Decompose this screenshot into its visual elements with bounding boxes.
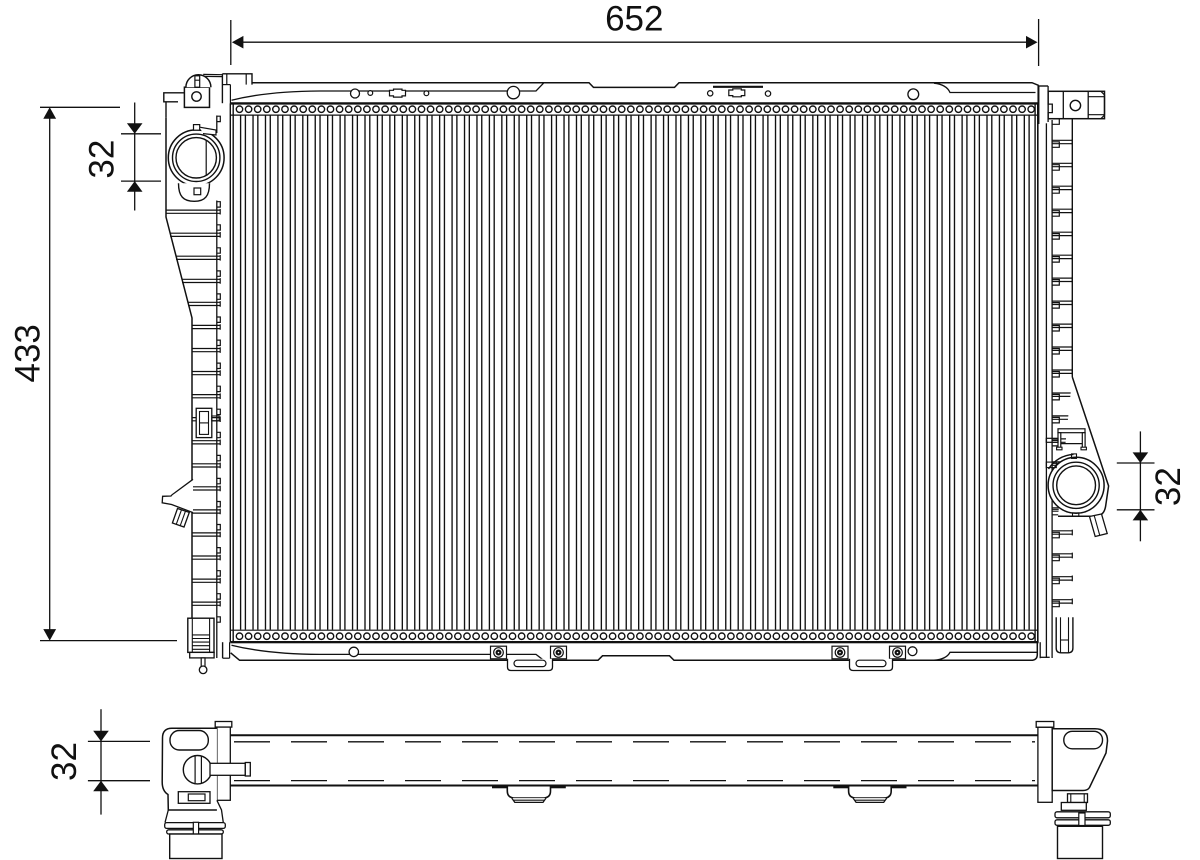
- svg-text:32: 32: [45, 742, 84, 781]
- svg-text:32: 32: [1149, 467, 1188, 506]
- svg-text:433: 433: [9, 324, 48, 382]
- svg-text:652: 652: [605, 0, 663, 38]
- svg-text:32: 32: [83, 140, 122, 179]
